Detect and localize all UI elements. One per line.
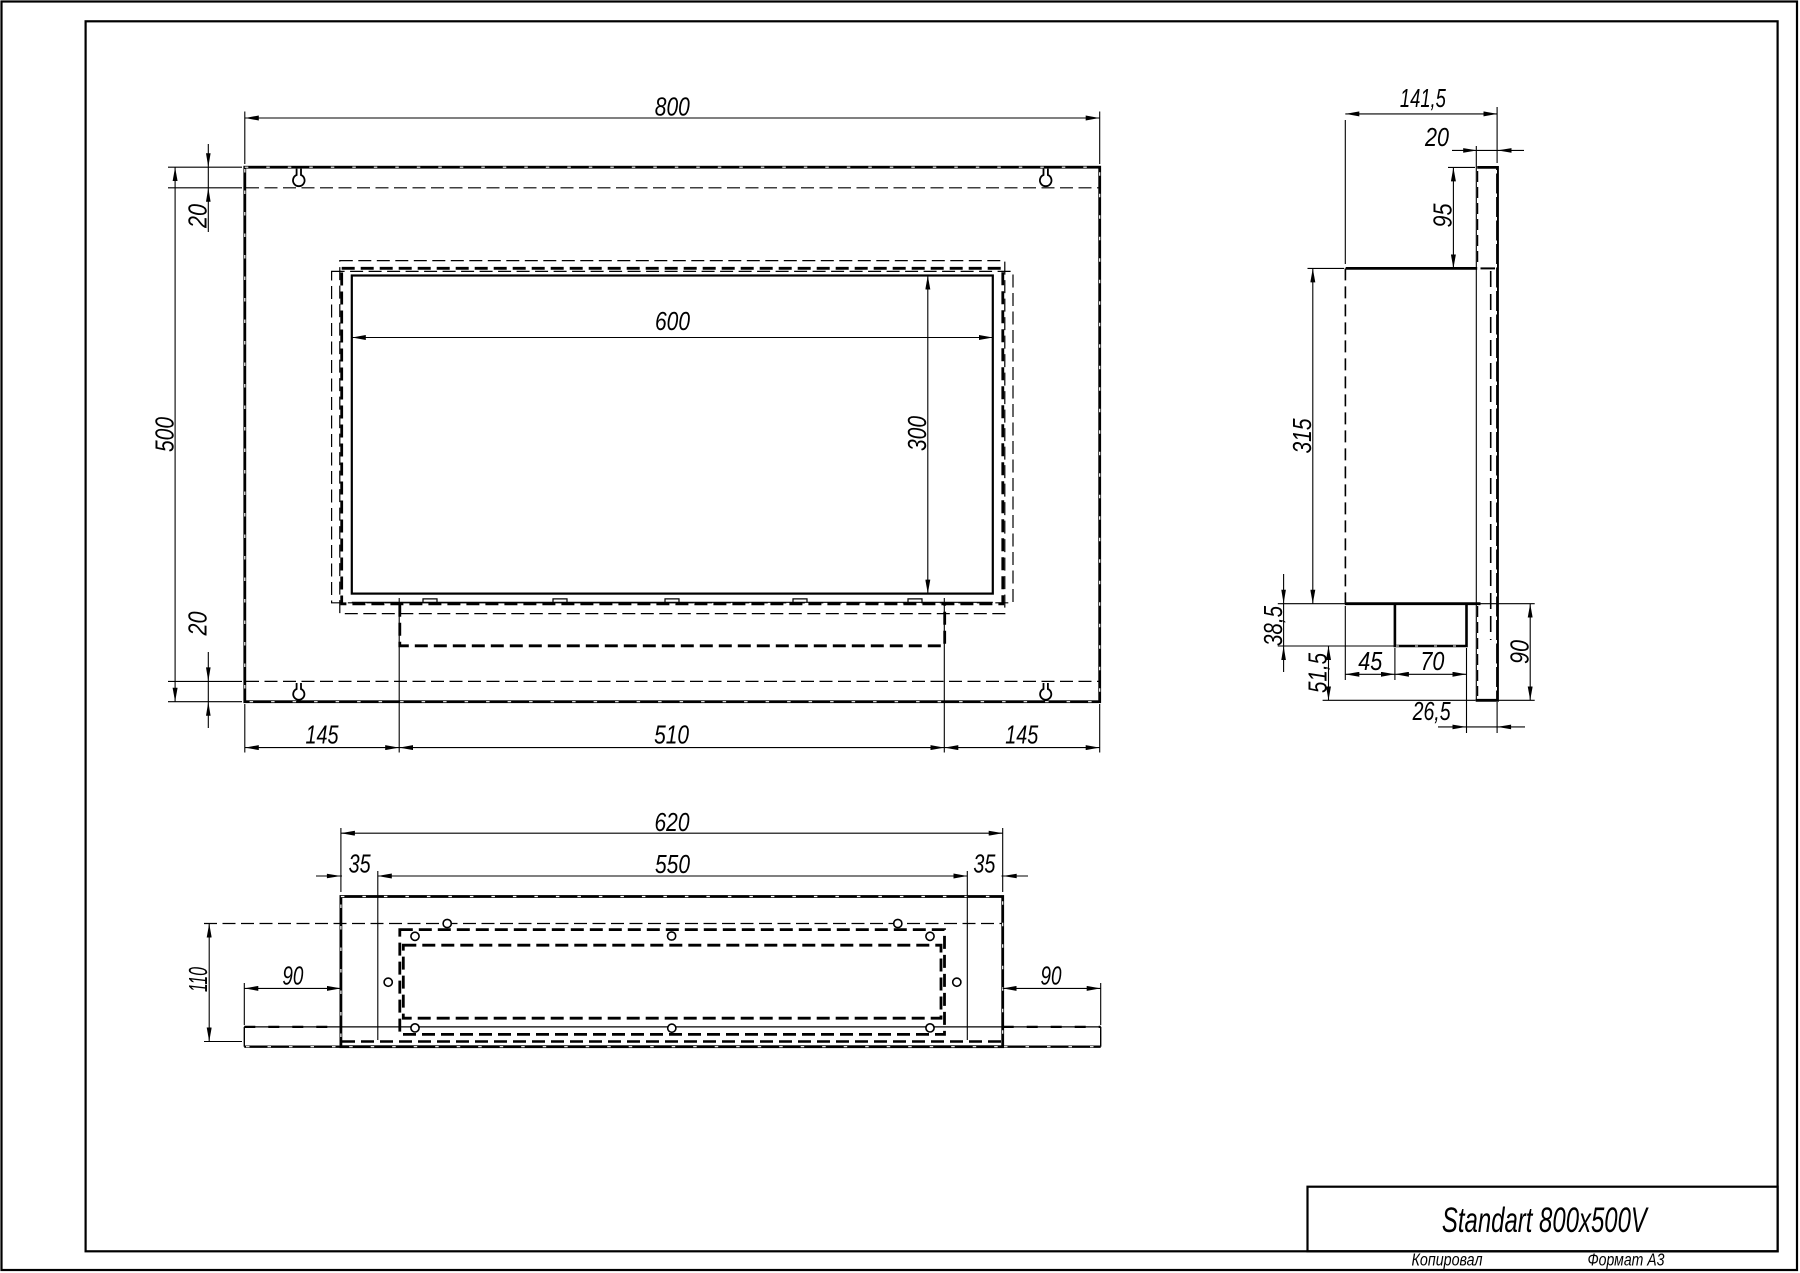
svg-text:70: 70 xyxy=(1420,646,1444,676)
svg-text:35: 35 xyxy=(349,849,371,879)
svg-text:145: 145 xyxy=(306,719,339,749)
svg-text:90: 90 xyxy=(282,961,303,991)
svg-text:Standart 800x500V: Standart 800x500V xyxy=(1442,1201,1649,1240)
svg-text:20: 20 xyxy=(183,611,213,636)
svg-text:51,5: 51,5 xyxy=(1303,653,1333,693)
svg-text:Формат А3: Формат А3 xyxy=(1588,1250,1665,1270)
svg-text:26,5: 26,5 xyxy=(1412,696,1451,726)
svg-text:38,5: 38,5 xyxy=(1258,606,1288,646)
svg-text:145: 145 xyxy=(1005,719,1038,749)
svg-text:315: 315 xyxy=(1287,418,1317,453)
svg-text:20: 20 xyxy=(1424,122,1449,152)
svg-text:20: 20 xyxy=(183,204,213,229)
svg-text:Копировал: Копировал xyxy=(1412,1250,1483,1270)
svg-text:141,5: 141,5 xyxy=(1400,83,1446,113)
svg-text:110: 110 xyxy=(183,967,213,992)
svg-text:510: 510 xyxy=(654,719,689,749)
svg-text:45: 45 xyxy=(1358,646,1382,676)
svg-text:620: 620 xyxy=(655,807,690,837)
svg-text:90: 90 xyxy=(1504,640,1534,664)
svg-text:800: 800 xyxy=(655,92,690,122)
svg-text:35: 35 xyxy=(973,849,995,879)
svg-text:550: 550 xyxy=(655,849,690,879)
svg-text:600: 600 xyxy=(655,306,690,336)
svg-text:95: 95 xyxy=(1428,203,1458,227)
svg-text:300: 300 xyxy=(902,416,932,451)
svg-text:500: 500 xyxy=(149,417,179,452)
svg-text:90: 90 xyxy=(1041,961,1062,991)
